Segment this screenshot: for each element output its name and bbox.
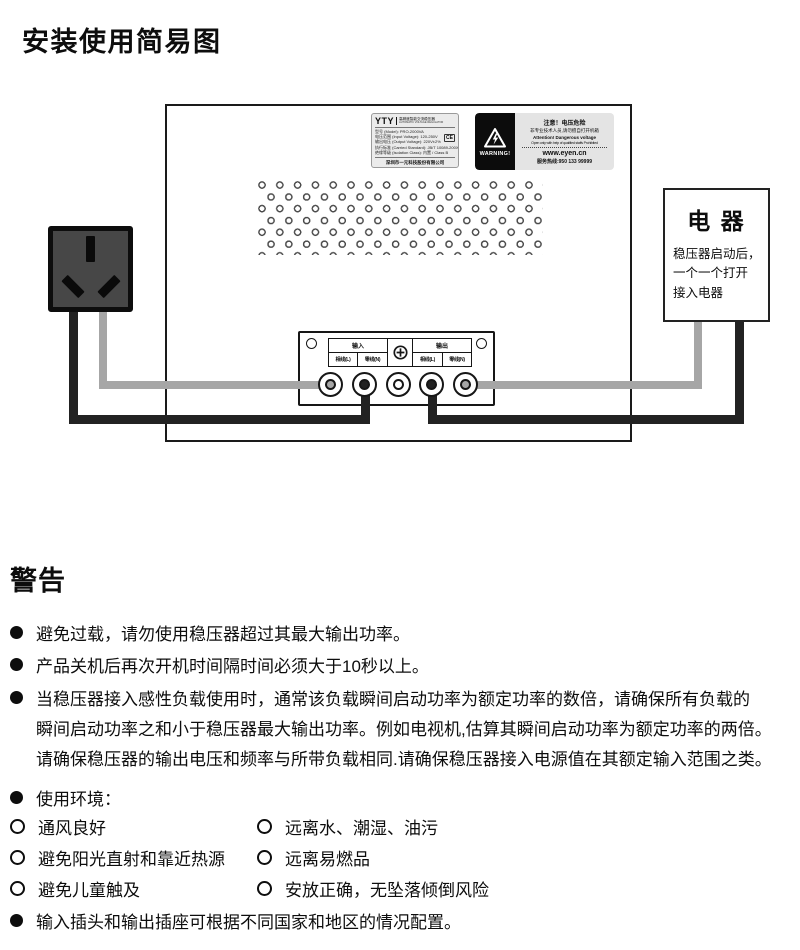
- bullet-circle-icon: [10, 850, 25, 865]
- warning-sub-en: Open only with help of qualified staffs …: [531, 141, 598, 145]
- bullet-circle-icon: [10, 881, 25, 896]
- brand-desc-en: AUTOMATIC VOLTAGE REGULATOR: [399, 122, 443, 125]
- output-live-label: 相线(L): [413, 353, 442, 366]
- warning-item: 避免过载，请勿使用稳压器超过其最大输出功率。: [10, 620, 410, 645]
- environment-text: 避免阳光直射和靠近热源: [38, 845, 225, 870]
- terminal-hole: [359, 379, 370, 390]
- website: www.eyen.cn: [542, 150, 586, 157]
- bullet-dot-icon: [10, 626, 23, 639]
- bullet-circle-icon: [257, 881, 272, 896]
- input-neutral-label: 零线(N): [358, 353, 387, 366]
- ground-icon: [393, 345, 408, 360]
- warning-item: 使用环境：: [10, 785, 121, 810]
- divider: [396, 117, 397, 125]
- screw-icon: [306, 338, 317, 349]
- plug-prong-neutral: [97, 275, 120, 298]
- ce-mark-icon: CE: [444, 134, 455, 142]
- warning-item: 输入插头和输出插座可根据不同国家和地区的情况配置。: [10, 908, 461, 933]
- warning-text: 避免过载，请勿使用稳压器超过其最大输出功率。: [36, 620, 410, 645]
- ground-cell: [388, 339, 412, 366]
- terminal-input-live: [318, 372, 343, 397]
- environment-text: 远离易燃品: [285, 845, 370, 870]
- terminal-hole: [460, 379, 471, 390]
- environment-item: 避免儿童触及: [10, 876, 140, 901]
- warning-badge: WARNING!: [475, 113, 515, 170]
- bullet-circle-icon: [10, 819, 25, 834]
- bullet-dot-icon: [10, 914, 23, 927]
- warning-item: 产品关机后再次开机时间隔时间必须大于10秒以上。: [10, 652, 429, 677]
- environment-text: 通风良好: [38, 814, 106, 839]
- warning-sub-cn: 非专业技术人员,请勿擅自打开机箱: [530, 128, 599, 134]
- warning-text: 当稳压器接入感性负载使用时，通常该负载瞬间启动功率为额定功率的数倍，请确保所有负…: [36, 685, 750, 710]
- spec-lines: 型号 (Model): PRO-2000VA 电压范围 (Input Volta…: [375, 129, 455, 155]
- bullet-circle-icon: [257, 819, 272, 834]
- bullet-dot-icon: [10, 691, 23, 704]
- page-title: 安装使用简易图: [22, 20, 222, 59]
- service-hotline: 服务热线:950 133 99999: [537, 158, 592, 165]
- output-live-wire: [735, 320, 744, 424]
- environment-text: 避免儿童触及: [38, 876, 140, 901]
- terminal-hole: [426, 379, 437, 390]
- environment-item: 通风良好: [10, 814, 106, 839]
- brand-description: 高精度智能交流稳压器 AUTOMATIC VOLTAGE REGULATOR: [399, 117, 443, 124]
- ventilation-holes: [258, 181, 543, 255]
- warning-text-continued: 瞬间启动功率之和小于稳压器最大输出功率。例如电视机,估算其瞬间启动功率为额定功率…: [36, 715, 772, 740]
- plug-prong-live: [61, 275, 84, 298]
- dotted-divider: [522, 147, 608, 148]
- appliance-box: 电 器 稳压器启动后， 一个一个打开 接入电器: [663, 188, 770, 322]
- warnings-heading: 警告: [10, 559, 66, 598]
- appliance-note-line: 一个一个打开: [673, 264, 763, 283]
- environment-item: 远离易燃品: [257, 845, 370, 870]
- plug-prong-earth: [86, 236, 95, 262]
- warning-text: 使用环境：: [36, 785, 121, 810]
- bullet-dot-icon: [10, 658, 23, 671]
- warning-triangle-icon: [483, 127, 507, 149]
- terminal-hole: [393, 379, 404, 390]
- environment-item: 安放正确，无坠落倾倒风险: [257, 876, 489, 901]
- appliance-note-line: 稳压器启动后，: [673, 245, 763, 264]
- output-neutral-wire: [694, 320, 702, 389]
- input-header: 输入: [329, 339, 387, 352]
- terminal-output-neutral: [453, 372, 478, 397]
- output-neutral-wire: [465, 381, 702, 389]
- warning-text: 输入插头和输出插座可根据不同国家和地区的情况配置。: [36, 908, 461, 933]
- environment-item: 避免阳光直射和靠近热源: [10, 845, 225, 870]
- environment-text: 远离水、潮湿、油污: [285, 814, 438, 839]
- bullet-circle-icon: [257, 850, 272, 865]
- warning-title-cn: 注意！电压危险: [543, 118, 585, 127]
- terminal-output-live: [419, 372, 444, 397]
- model-spec-label: YTY 高精度智能交流稳压器 AUTOMATIC VOLTAGE REGULAT…: [371, 113, 459, 168]
- warning-item: 当稳压器接入感性负载使用时，通常该负载瞬间启动功率为额定功率的数倍，请确保所有负…: [10, 685, 750, 710]
- screw-icon: [476, 338, 487, 349]
- input-neutral-wire: [69, 415, 370, 424]
- warning-word: WARNING!: [480, 151, 511, 157]
- appliance-note-line: 接入电器: [673, 284, 763, 303]
- input-live-label: 相线(L): [329, 353, 357, 366]
- terminal-label-table: 输入 输出 相线(L) 零线(N) 相线(L) 零线(N): [328, 338, 472, 367]
- terminal-hole: [325, 379, 336, 390]
- brand-logo: YTY: [375, 116, 394, 126]
- input-neutral-wire: [69, 309, 78, 424]
- environment-item: 远离水、潮湿、油污: [257, 814, 438, 839]
- input-live-wire: [99, 381, 335, 389]
- terminal-input-neutral: [352, 372, 377, 397]
- terminal-ground: [386, 372, 411, 397]
- high-voltage-warning-label: WARNING! 注意！电压危险 非专业技术人员,请勿擅自打开机箱 Attent…: [475, 113, 614, 170]
- output-header: 输出: [413, 339, 471, 352]
- warning-title-en: Attention! Dangerous voltage: [533, 135, 596, 140]
- output-live-wire: [428, 415, 744, 424]
- appliance-note: 稳压器启动后， 一个一个打开 接入电器: [665, 245, 768, 303]
- warning-text: 产品关机后再次开机时间隔时间必须大于10秒以上。: [36, 652, 429, 677]
- output-neutral-label: 零线(N): [443, 353, 471, 366]
- warning-text-continued: 请确保稳压器的输出电压和频率与所带负载相同.请确保稳压器接入电源值在其额定输入范…: [36, 745, 772, 770]
- brand-header: YTY 高精度智能交流稳压器 AUTOMATIC VOLTAGE REGULAT…: [375, 116, 455, 128]
- bullet-dot-icon: [10, 791, 23, 804]
- manual-page: 安装使用简易图 YTY 高精度智能交流稳压器 AUTOMATIC VOLTAGE…: [0, 0, 800, 950]
- input-live-wire: [99, 309, 107, 389]
- power-plug-icon: [48, 226, 133, 312]
- company-name: 深圳市一元科技股份有限公司: [375, 157, 455, 166]
- warning-texts: 注意！电压危险 非专业技术人员,请勿擅自打开机箱 Attention! Dang…: [515, 113, 614, 170]
- spec-isolation: 绝缘等级 (Isolation Class): 内置 / Class B: [375, 150, 455, 155]
- environment-text: 安放正确，无坠落倾倒风险: [285, 876, 489, 901]
- appliance-title: 电 器: [665, 202, 768, 236]
